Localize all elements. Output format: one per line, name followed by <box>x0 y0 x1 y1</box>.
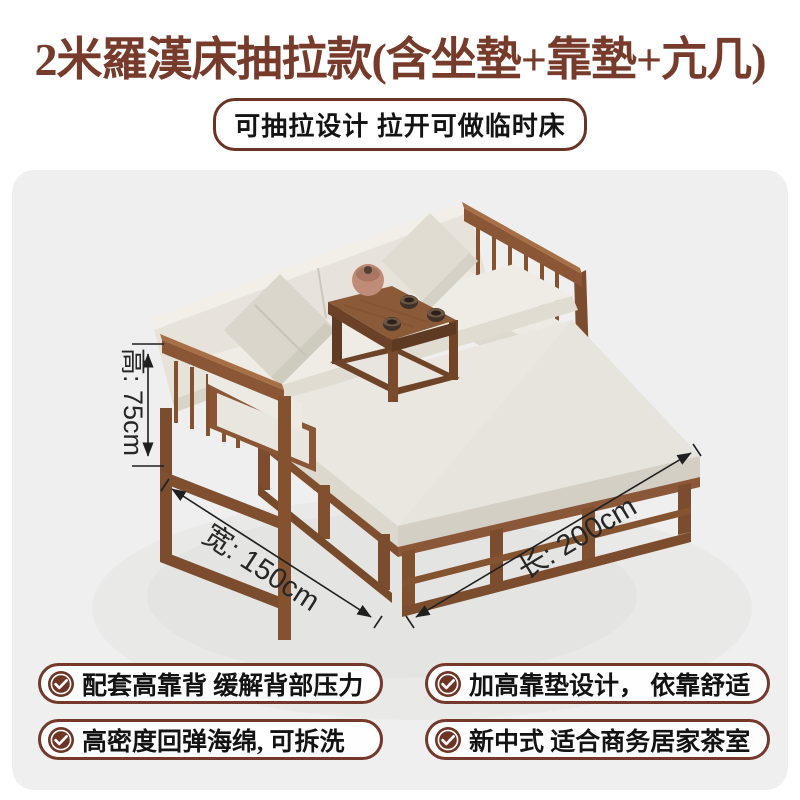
check-icon <box>47 726 75 754</box>
feature-pill-backrest: 配套高靠背 缓解背部压力 <box>38 663 383 704</box>
feature-text: 新中式 适合商务居家茶室 <box>469 722 750 758</box>
subtitle-badge: 可抽拉设计 拉开可做临时床 <box>213 98 587 151</box>
product-poster: { "header": { "title": "2米羅漢床抽拉款(含坐墊+靠墊+… <box>0 0 800 800</box>
feature-text: 加高靠垫设计， 依靠舒适 <box>469 666 750 702</box>
feature-text: 高密度回弹海绵, 可拆洗 <box>82 722 345 758</box>
feature-pill-foam: 高密度回弹海绵, 可拆洗 <box>38 719 383 760</box>
check-icon <box>434 670 462 698</box>
teapot <box>352 264 384 296</box>
header: 2米羅漢床抽拉款(含坐墊+靠墊+亢几) 可抽拉设计 拉开可做临时床 <box>0 0 800 151</box>
feature-list: 配套高靠背 缓解背部压力 加高靠垫设计， 依靠舒适 高密度回弹海绵, 可拆洗 <box>38 663 770 760</box>
product-showcase-panel: 高: 75cm 宽: 150cm 长: 200cm 配套高靠背 缓解背部压力 <box>12 170 788 790</box>
check-icon <box>434 726 462 754</box>
feature-pill-style: 新中式 适合商务居家茶室 <box>425 719 770 760</box>
feature-pill-cushion-height: 加高靠垫设计， 依靠舒适 <box>425 663 770 704</box>
feature-text: 配套高靠背 缓解背部压力 <box>82 666 363 702</box>
check-icon <box>47 670 75 698</box>
height-dimension-label: 高: 75cm <box>118 348 148 456</box>
product-title: 2米羅漢床抽拉款(含坐墊+靠墊+亢几) <box>0 34 800 87</box>
